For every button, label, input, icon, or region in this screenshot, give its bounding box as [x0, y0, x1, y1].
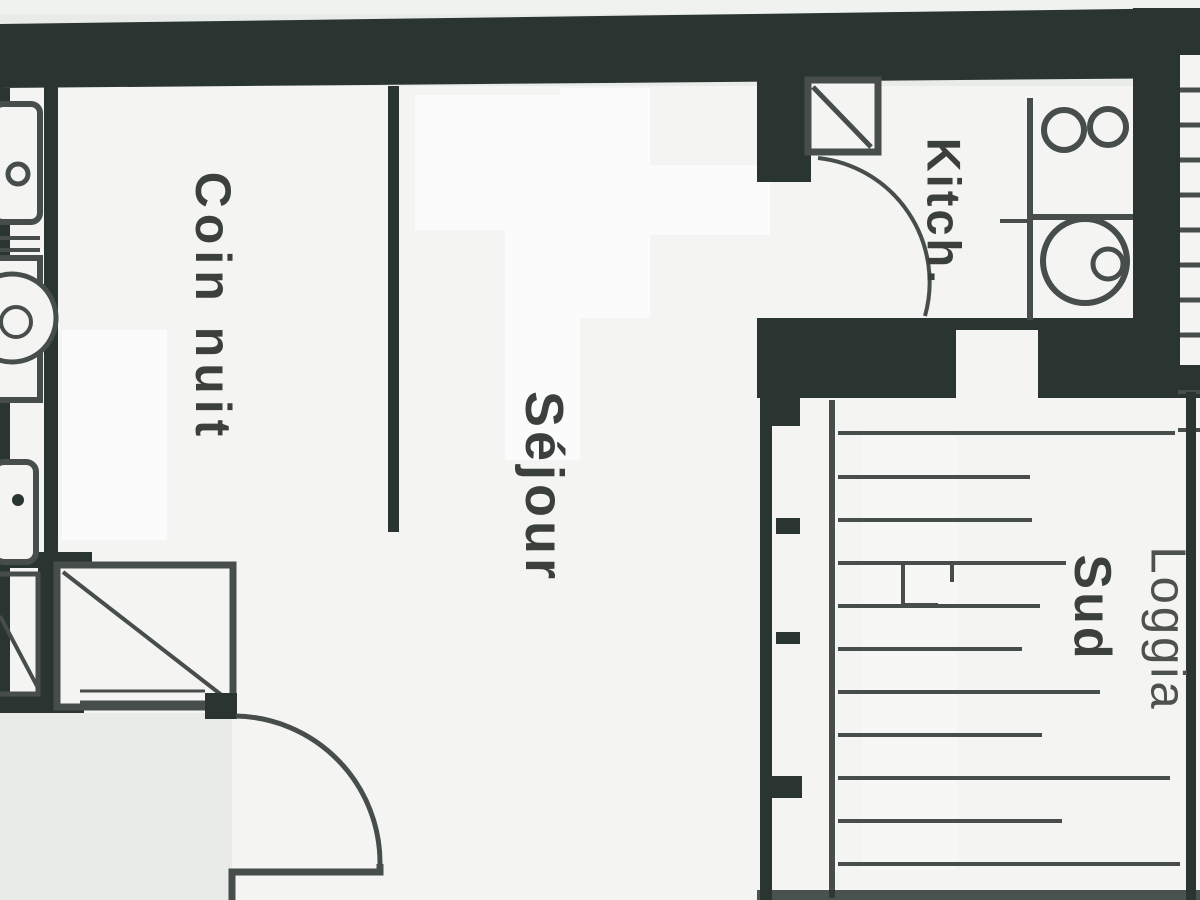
room-label-kitchenette: Kitch. — [921, 138, 968, 287]
coin-nuit-sejour-partition — [388, 86, 399, 532]
room-label-sud: Sud — [1066, 554, 1118, 661]
bidet-icon — [0, 462, 36, 562]
loggia-access-opening — [956, 330, 1038, 398]
floor-plan-drawing — [0, 0, 1200, 900]
party-wall-hatch — [1180, 55, 1200, 365]
room-label-loggia: Loggia — [1143, 546, 1192, 711]
top-exterior-wall — [0, 8, 1200, 88]
loggia-bottom-edge — [757, 890, 1200, 900]
wardrobe-closet — [57, 565, 233, 707]
toilet-icon — [0, 104, 40, 222]
room-label-sejour: Séjour — [517, 391, 571, 583]
kitchen-wall-stub — [757, 70, 811, 182]
window-wall-inner-line — [760, 398, 772, 900]
kitchen-sink-icon — [1043, 219, 1127, 303]
kitchen-bottom-wall — [757, 318, 1133, 398]
floor-plan: Coin nuit Séjour Kitch. Sud Loggia — [0, 0, 1200, 900]
room-label-coin-nuit: Coin nuit — [188, 172, 238, 443]
door-hinge-stub — [205, 693, 237, 719]
